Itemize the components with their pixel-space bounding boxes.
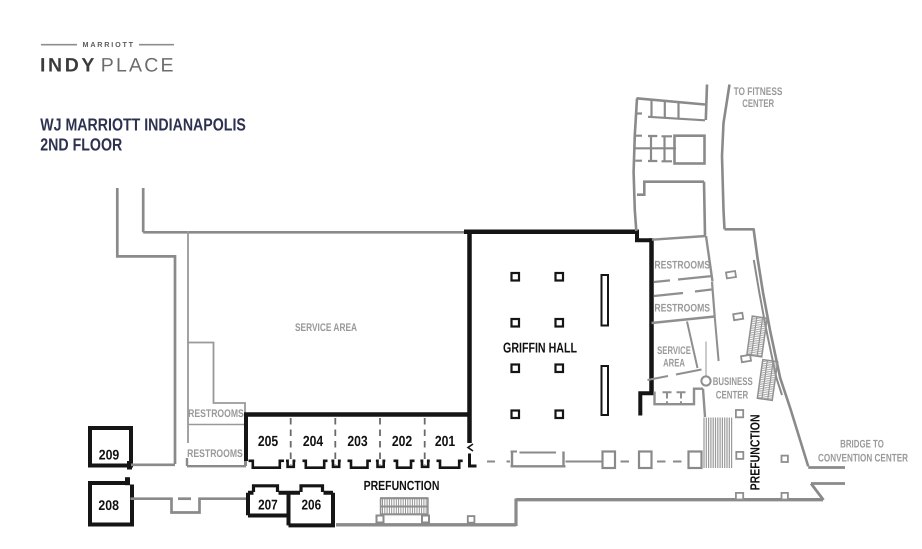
- svg-text:BUSINESS: BUSINESS: [713, 376, 753, 388]
- svg-text:RESTROOMS: RESTROOMS: [654, 260, 710, 272]
- svg-text:AREA: AREA: [663, 357, 685, 369]
- svg-text:SERVICE AREA: SERVICE AREA: [295, 322, 357, 334]
- svg-text:PREFUNCTION: PREFUNCTION: [748, 414, 763, 490]
- svg-text:202: 202: [392, 434, 412, 450]
- svg-text:GRIFFIN HALL: GRIFFIN HALL: [503, 341, 577, 357]
- svg-text:RESTROOMS: RESTROOMS: [654, 303, 710, 315]
- svg-text:RESTROOMS: RESTROOMS: [188, 408, 244, 420]
- svg-text:203: 203: [347, 434, 367, 450]
- svg-text:WJ MARRIOTT INDIANAPOLIS: WJ MARRIOTT INDIANAPOLIS: [40, 114, 246, 134]
- svg-text:207: 207: [258, 497, 278, 513]
- svg-text:INDY: INDY: [40, 54, 97, 76]
- svg-text:206: 206: [301, 497, 321, 513]
- svg-text:PREFUNCTION: PREFUNCTION: [364, 478, 440, 493]
- svg-text:209: 209: [99, 446, 120, 462]
- svg-text:2ND FLOOR: 2ND FLOOR: [40, 135, 122, 155]
- svg-text:MARRIOTT: MARRIOTT: [83, 40, 135, 49]
- svg-text:CENTER: CENTER: [742, 98, 774, 110]
- svg-text:BRIDGE TO: BRIDGE TO: [840, 438, 884, 450]
- svg-text:201: 201: [435, 434, 455, 450]
- svg-text:PLACE: PLACE: [101, 54, 176, 76]
- svg-text:205: 205: [258, 434, 278, 450]
- svg-text:CONVENTION CENTER: CONVENTION CENTER: [818, 452, 908, 464]
- svg-text:208: 208: [98, 497, 119, 513]
- svg-text:RESTROOMS: RESTROOMS: [187, 448, 243, 460]
- svg-text:CENTER: CENTER: [716, 389, 748, 401]
- svg-text:204: 204: [303, 434, 324, 450]
- svg-text:SERVICE: SERVICE: [657, 345, 691, 357]
- svg-text:TO FITNESS: TO FITNESS: [734, 86, 783, 98]
